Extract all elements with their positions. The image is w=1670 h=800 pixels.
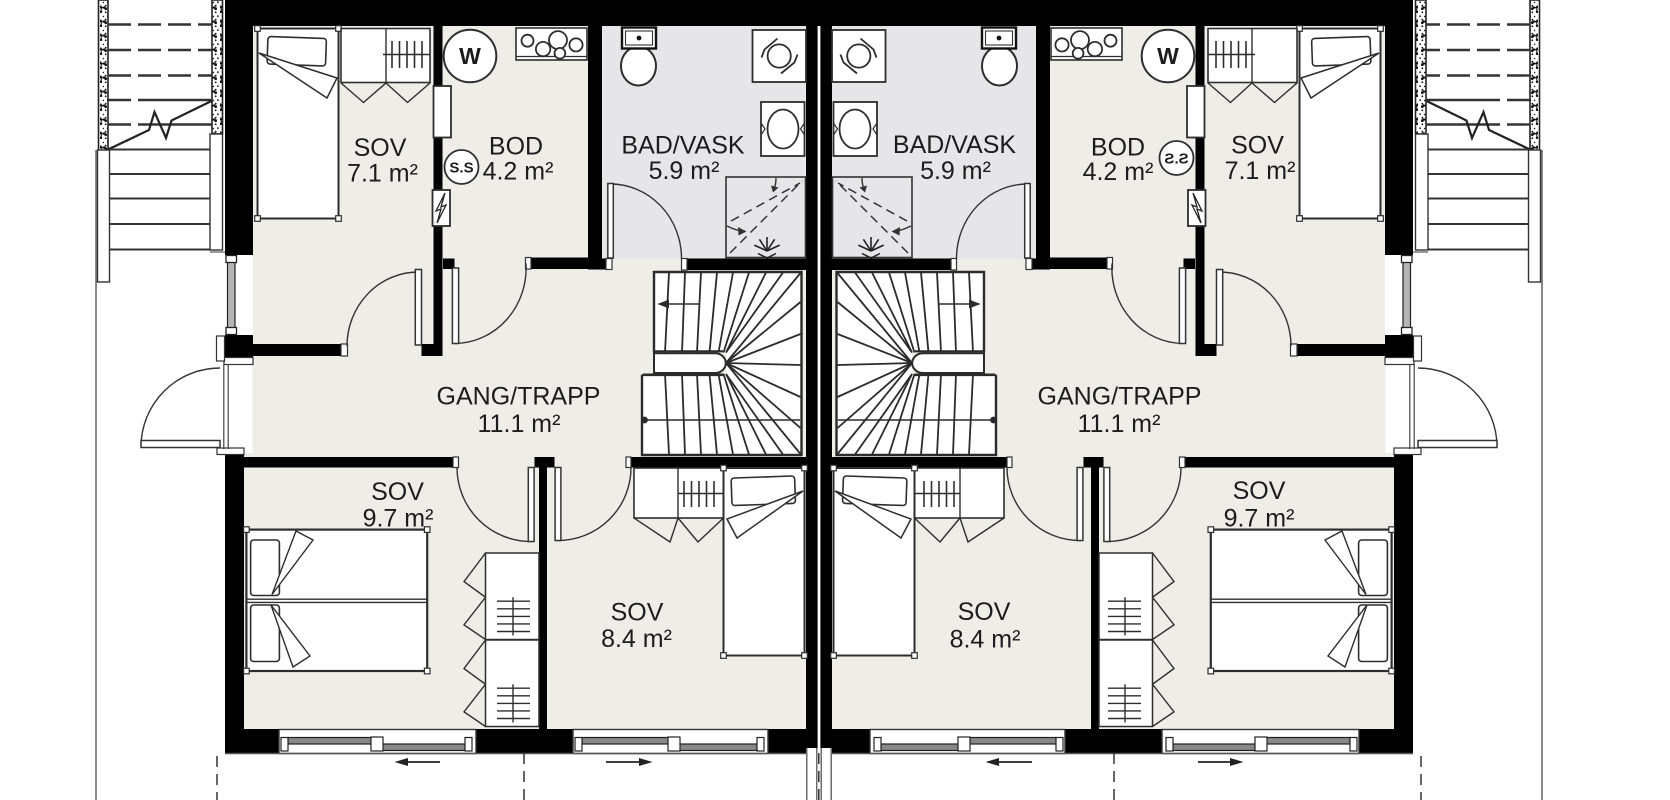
svg-text:4.2 m²: 4.2 m² bbox=[1083, 158, 1154, 186]
svg-text:S.S: S.S bbox=[449, 160, 473, 177]
svg-text:GANG/TRAPP: GANG/TRAPP bbox=[1038, 383, 1202, 411]
svg-text:7.1 m²: 7.1 m² bbox=[347, 160, 418, 188]
svg-text:W: W bbox=[1157, 43, 1179, 69]
svg-text:11.1 m²: 11.1 m² bbox=[1078, 410, 1161, 438]
svg-text:9.7 m²: 9.7 m² bbox=[363, 505, 434, 533]
svg-text:SOV: SOV bbox=[1233, 477, 1286, 505]
svg-text:W: W bbox=[459, 43, 481, 69]
svg-text:9.7 m²: 9.7 m² bbox=[1224, 505, 1295, 533]
svg-text:SOV: SOV bbox=[611, 599, 664, 627]
svg-text:GANG/TRAPP: GANG/TRAPP bbox=[437, 383, 601, 411]
svg-text:7.1 m²: 7.1 m² bbox=[1225, 157, 1296, 185]
svg-text:4.2 m²: 4.2 m² bbox=[483, 158, 554, 186]
svg-text:5.9 m²: 5.9 m² bbox=[649, 157, 720, 185]
svg-text:SOV: SOV bbox=[354, 134, 407, 162]
svg-text:11.1 m²: 11.1 m² bbox=[478, 410, 561, 438]
svg-text:BAD/VASK: BAD/VASK bbox=[893, 131, 1017, 159]
svg-text:BOD: BOD bbox=[489, 133, 543, 161]
svg-text:BAD/VASK: BAD/VASK bbox=[621, 132, 745, 160]
svg-text:SOV: SOV bbox=[958, 598, 1011, 626]
svg-text:S.S: S.S bbox=[1164, 151, 1188, 168]
svg-text:SOV: SOV bbox=[1231, 132, 1284, 160]
svg-text:SOV: SOV bbox=[371, 478, 424, 506]
svg-text:8.4 m²: 8.4 m² bbox=[950, 626, 1021, 654]
svg-text:5.9 m²: 5.9 m² bbox=[920, 157, 991, 185]
svg-text:8.4 m²: 8.4 m² bbox=[601, 625, 672, 653]
